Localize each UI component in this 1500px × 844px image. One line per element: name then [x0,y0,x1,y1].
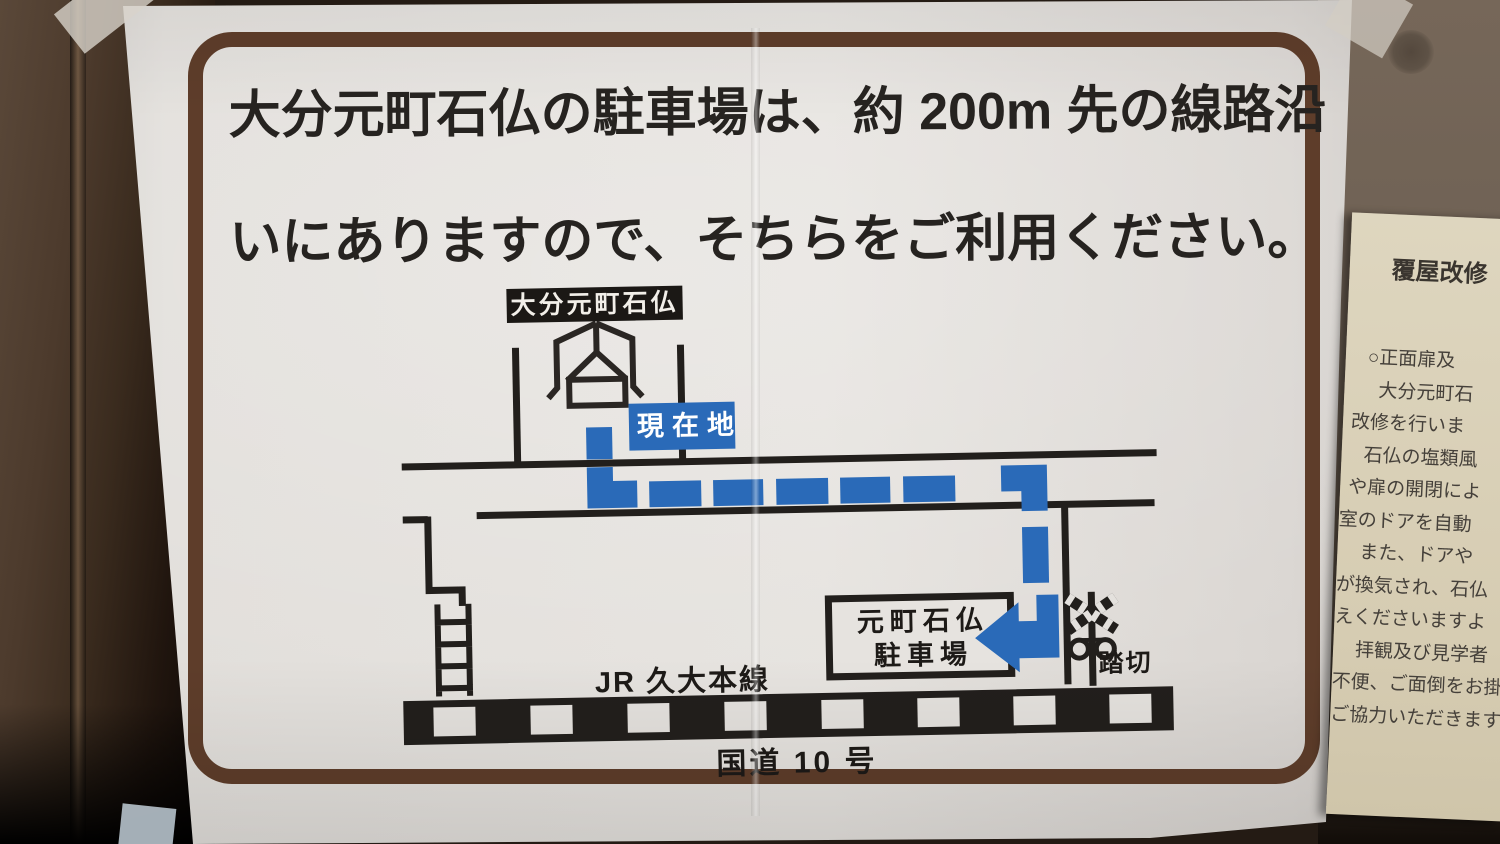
side-notice-paper: 覆屋改修 ○正面扉及 大分元町石 改修を行いま 石仏の塩類風 や扉の開閉によ 室… [1326,212,1500,821]
railway-line-label: JR 久大本線 [594,656,770,701]
side-notice-title: 覆屋改修 [1391,250,1500,291]
parking-label-line1: 元町石仏 [834,603,1005,640]
access-map: 大分元町石仏 現在地 元町石仏 駐車場 踏切 JR 久大本線 国道 10 号 [0,0,1500,844]
side-notice-line: ご協力いただきます [1330,698,1500,738]
sign-paper: 大分元町石仏の駐車場は、約 200m 先の線路沿 いにありますので、そちらをご利… [0,0,1500,844]
photo-of-parking-sign: 大分元町石仏の駐車場は、約 200m 先の線路沿 いにありますので、そちらをご利… [0,0,1500,844]
parking-lot-label: 元町石仏 駐車場 [834,603,1005,674]
national-route-label: 国道 10 号 [716,736,878,783]
side-notice-body: ○正面扉及 大分元町石 改修を行いま 石仏の塩類風 や扉の開閉によ 室のドアを自… [1330,341,1500,738]
map-drawing [0,0,1500,844]
crossing-label: 踏切 [1098,643,1153,680]
shrine-name-label: 大分元町石仏 [506,286,683,323]
railway-track [403,686,1174,745]
parking-label-line2: 駐車場 [835,637,1006,674]
tape-bottom-left [118,803,177,844]
stairs-icon [434,604,473,697]
current-location-badge: 現在地 [629,402,736,451]
shrine-icon [547,322,643,406]
paper-fold-crease [751,28,760,816]
